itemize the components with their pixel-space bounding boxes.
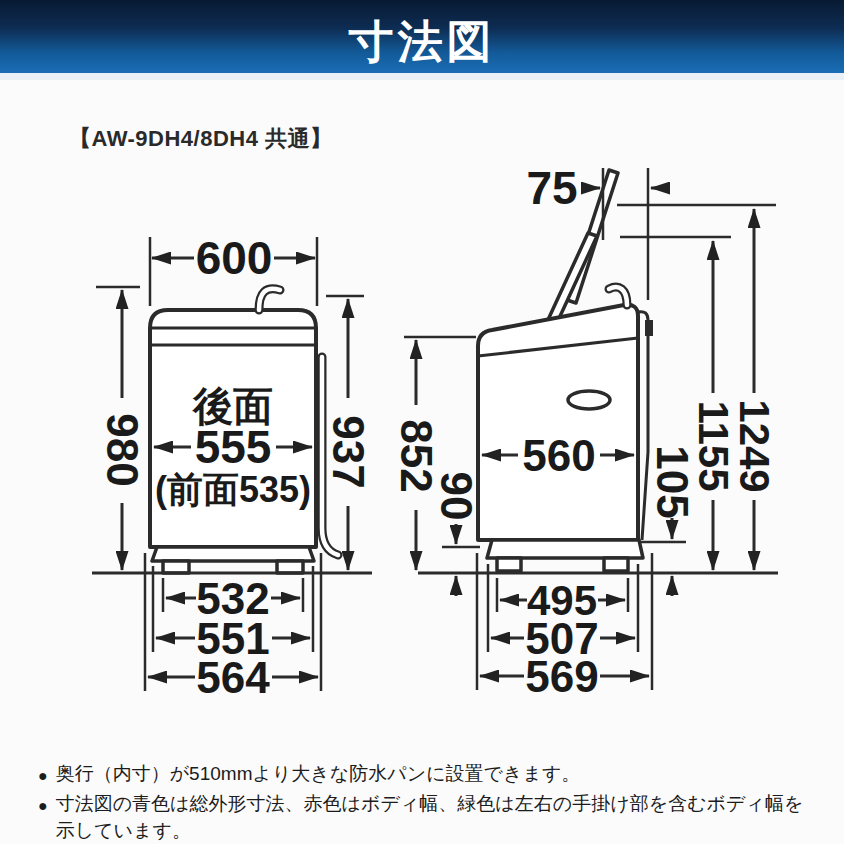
front-overall-width-value: 600 xyxy=(196,232,273,284)
dimension-diagram: 600 980 937 後面 555 (前面535) xyxy=(0,0,844,844)
side-dim-base-height: 90 xyxy=(432,472,481,596)
side-front-foot xyxy=(497,558,521,571)
side-handle-icon xyxy=(568,391,610,409)
side-base xyxy=(487,540,643,558)
note-line-2: 示しています。 xyxy=(56,820,191,841)
note-text: 寸法図の青色は総外形寸法、赤色はボディ幅、緑色は左右の手掛け部を含むボディ幅を … xyxy=(56,790,818,844)
front-view: 600 980 937 後面 555 (前面535) xyxy=(92,232,373,702)
side-dim-lid-open-height: 1249 xyxy=(731,209,778,570)
footnotes: ● 奥行（内寸）が510mmより大きな防水パンに設置できます。 ● 寸法図の青色… xyxy=(38,760,818,844)
side-lid-open-height-value: 1249 xyxy=(731,399,778,492)
front-base xyxy=(152,547,314,561)
front-dim-overall-width: 600 xyxy=(150,232,317,306)
side-base-height-value: 90 xyxy=(432,472,481,521)
note-waterproof-pan: ● 奥行（内寸）が510mmより大きな防水パンに設置できます。 xyxy=(38,760,818,789)
front-dim-body-height: 937 xyxy=(324,296,373,570)
front-left-foot xyxy=(163,561,189,573)
front-body-width-front-value: (前面535) xyxy=(155,469,311,510)
side-lid-overhang-value: 75 xyxy=(526,162,577,214)
side-view: 75 852 90 560 105 xyxy=(392,162,779,701)
front-handle-width-value: 564 xyxy=(196,653,270,702)
side-overall-depth-value: 569 xyxy=(525,652,598,701)
front-body-height-value: 937 xyxy=(324,415,373,488)
front-overall-height-value: 980 xyxy=(98,413,147,486)
bullet-icon: ● xyxy=(38,792,48,819)
side-body-depth-value: 560 xyxy=(522,431,595,480)
side-dim-lid-inner-height: 1155 xyxy=(690,241,737,570)
front-body-width-rear-value: 555 xyxy=(195,421,272,473)
side-rear-clearance-value: 105 xyxy=(648,445,697,518)
note-color-legend: ● 寸法図の青色は総外形寸法、赤色はボディ幅、緑色は左右の手掛け部を含むボディ幅… xyxy=(38,790,818,844)
side-hinge-icon xyxy=(645,320,653,336)
note-text: 奥行（内寸）が510mmより大きな防水パンに設置できます。 xyxy=(56,760,818,787)
side-lid-inner-height-value: 1155 xyxy=(690,400,737,491)
side-dim-front-height: 852 xyxy=(392,337,477,570)
front-dim-overall-height: 980 xyxy=(96,287,147,570)
bullet-icon: ● xyxy=(38,762,48,789)
side-rear-foot xyxy=(604,558,628,571)
note-line-1: 寸法図の青色は総外形寸法、赤色はボディ幅、緑色は左右の手掛け部を含むボディ幅を xyxy=(56,793,804,814)
front-right-foot xyxy=(277,561,303,573)
